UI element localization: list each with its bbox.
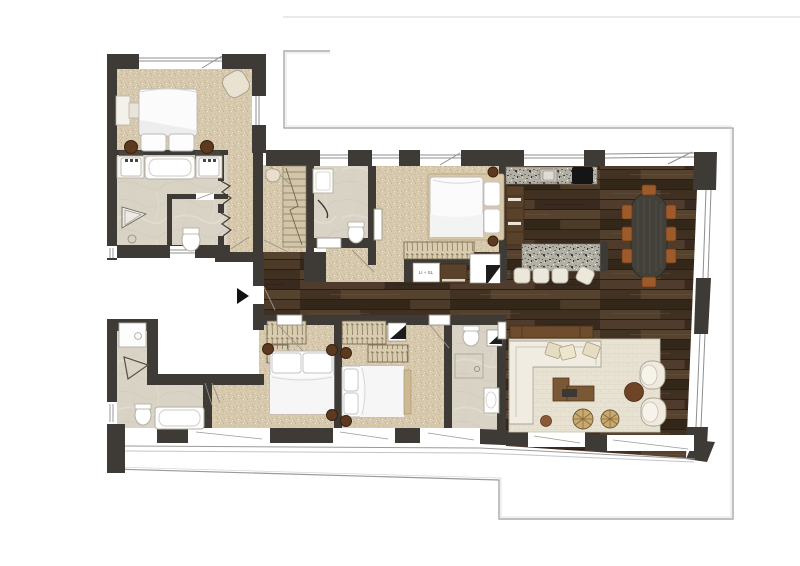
svg-text:LI + SL: LI + SL bbox=[419, 270, 434, 275]
